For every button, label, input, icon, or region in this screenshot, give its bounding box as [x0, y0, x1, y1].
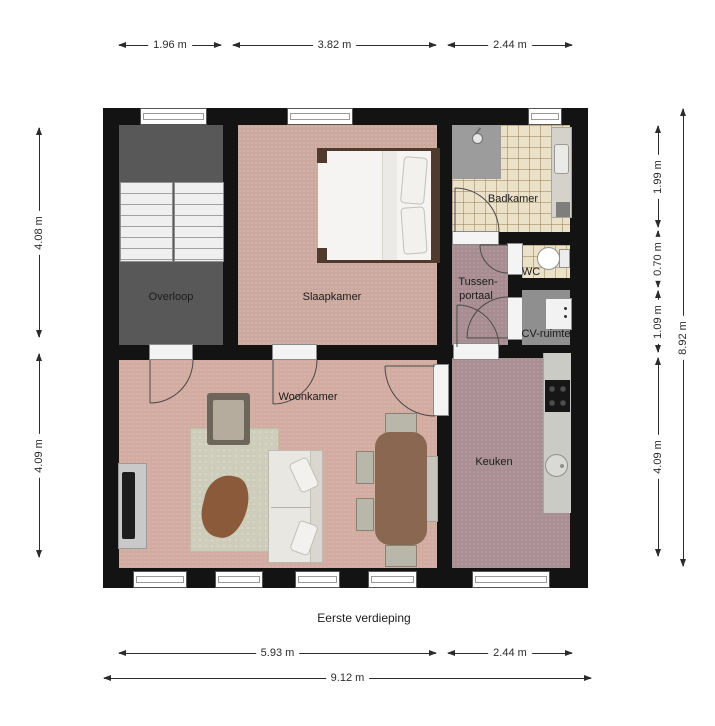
floor-title: Eerste verdieping: [317, 611, 410, 625]
armchair-cushion: [213, 400, 244, 440]
arrow-left-icon: [232, 42, 240, 48]
dimension-right-1: 1.99 m: [653, 125, 663, 228]
kitchen-counter: [543, 353, 571, 513]
label-keuken: Keuken: [475, 456, 512, 468]
dimension-right-2: 0.70 m: [653, 230, 663, 288]
arrow-up-icon: [36, 127, 42, 135]
arrow-up-icon: [655, 125, 661, 133]
floorplan-page: Overloop Slaapkamer Badkamer WC Tussen- …: [0, 0, 715, 726]
window-pane: [298, 576, 337, 583]
dining-chair: [356, 451, 374, 484]
boiler-knob: [564, 315, 567, 318]
bed: [318, 148, 440, 263]
label-tussenportaal-line1: Tussen-: [458, 276, 497, 288]
doorway-tussenportaal-keuken: [453, 343, 499, 360]
arrow-right-icon: [565, 42, 573, 48]
dining-chair: [356, 498, 374, 531]
shower-head-icon: [472, 133, 483, 144]
arrow-right-icon: [214, 42, 222, 48]
dimension-bottom-total: 9.12 m: [103, 673, 592, 683]
dimension-label: 4.09 m: [652, 435, 664, 479]
dimension-bottom-2: 2.44 m: [447, 648, 573, 658]
arrow-left-icon: [118, 42, 126, 48]
dimension-label: 9.12 m: [326, 672, 370, 684]
shower: [452, 125, 501, 179]
doorway-overloop-woonkamer: [149, 344, 193, 360]
boiler: [545, 298, 572, 330]
window: [140, 108, 207, 125]
sofa-seam: [271, 507, 310, 508]
tv: [122, 472, 135, 539]
doorway-tussenportaal-wc: [507, 243, 523, 275]
bed-post: [317, 248, 327, 263]
window: [368, 571, 417, 588]
window-pane: [531, 113, 559, 120]
dimension-label: 8.92 m: [677, 316, 689, 360]
doorway-tussenportaal-badkamer: [452, 231, 499, 245]
bed-duvet-fold: [382, 151, 397, 260]
dimension-label: 3.82 m: [313, 39, 357, 51]
label-cv-ruimte: CV-ruimte: [522, 328, 571, 340]
washbasin: [554, 144, 569, 174]
bath-mat: [556, 202, 570, 217]
sofa: [268, 450, 323, 563]
boiler-knob: [564, 307, 567, 310]
window: [295, 571, 340, 588]
window: [472, 571, 550, 588]
window-pane: [371, 576, 414, 583]
kitchen-sink: [545, 454, 568, 477]
arrow-right-icon: [565, 650, 573, 656]
faucet: [560, 464, 564, 468]
armchair: [207, 393, 250, 445]
arrow-up-icon: [655, 357, 661, 365]
window-pane: [136, 576, 184, 583]
window-pane: [290, 113, 350, 120]
arrow-down-icon: [36, 550, 42, 558]
arrow-right-icon: [429, 650, 437, 656]
dimension-top-1: 1.96 m: [118, 40, 222, 50]
dimension-top-2: 3.82 m: [232, 40, 437, 50]
doorway-woonkamer-keuken: [433, 364, 449, 416]
dining-chair: [385, 545, 417, 567]
staircase-flight-right: [174, 182, 224, 262]
window-pane: [143, 113, 204, 120]
arrow-down-icon: [655, 220, 661, 228]
dimension-right-3: 1.09 m: [653, 290, 663, 353]
label-tussenportaal-line2: portaal: [459, 290, 493, 302]
dimension-label: 1.09 m: [652, 300, 664, 344]
arrow-left-icon: [447, 42, 455, 48]
window: [215, 571, 263, 588]
cooktop: [545, 380, 570, 412]
arrow-left-icon: [118, 650, 126, 656]
dimension-label: 0.70 m: [652, 237, 664, 281]
bed-post: [317, 148, 327, 163]
arrow-right-icon: [584, 675, 592, 681]
window-pane: [218, 576, 260, 583]
dimension-label: 4.09 m: [33, 434, 45, 478]
pillow: [400, 206, 427, 255]
dimension-label: 2.44 m: [488, 39, 532, 51]
arrow-left-icon: [447, 650, 455, 656]
pillow: [400, 156, 428, 205]
dimension-label: 5.93 m: [256, 647, 300, 659]
dimension-bottom-1: 5.93 m: [118, 648, 437, 658]
floorplan: [103, 108, 588, 588]
dimension-left-2: 4.09 m: [34, 353, 44, 558]
dining-table: [375, 432, 427, 545]
window: [528, 108, 562, 125]
dimension-left-1: 4.08 m: [34, 127, 44, 338]
arrow-up-icon: [655, 290, 661, 298]
label-badkamer: Badkamer: [488, 193, 538, 205]
arrow-up-icon: [36, 353, 42, 361]
arrow-down-icon: [36, 330, 42, 338]
toilet-bowl: [537, 247, 560, 270]
dimension-label: 4.08 m: [33, 211, 45, 255]
dimension-label: 2.44 m: [488, 647, 532, 659]
window: [287, 108, 353, 125]
dimension-label: 1.96 m: [148, 39, 192, 51]
label-woonkamer: Woonkamer: [278, 391, 337, 403]
staircase-flight-left: [120, 182, 173, 262]
arrow-down-icon: [655, 345, 661, 353]
window-pane: [475, 576, 547, 583]
label-wc: WC: [522, 266, 540, 278]
dimension-label: 1.99 m: [652, 155, 664, 199]
arrow-down-icon: [655, 549, 661, 557]
dimension-right-total: 8.92 m: [678, 108, 688, 567]
dimension-right-4: 4.09 m: [653, 357, 663, 557]
arrow-left-icon: [103, 675, 111, 681]
dimension-top-3: 2.44 m: [447, 40, 573, 50]
arrow-down-icon: [655, 280, 661, 288]
label-overloop: Overloop: [149, 291, 194, 303]
label-slaapkamer: Slaapkamer: [303, 291, 362, 303]
arrow-up-icon: [680, 108, 686, 116]
arrow-down-icon: [680, 559, 686, 567]
toilet-tank: [559, 249, 570, 268]
arrow-right-icon: [429, 42, 437, 48]
window: [133, 571, 187, 588]
doorway-slaapkamer-woonkamer: [272, 344, 317, 360]
